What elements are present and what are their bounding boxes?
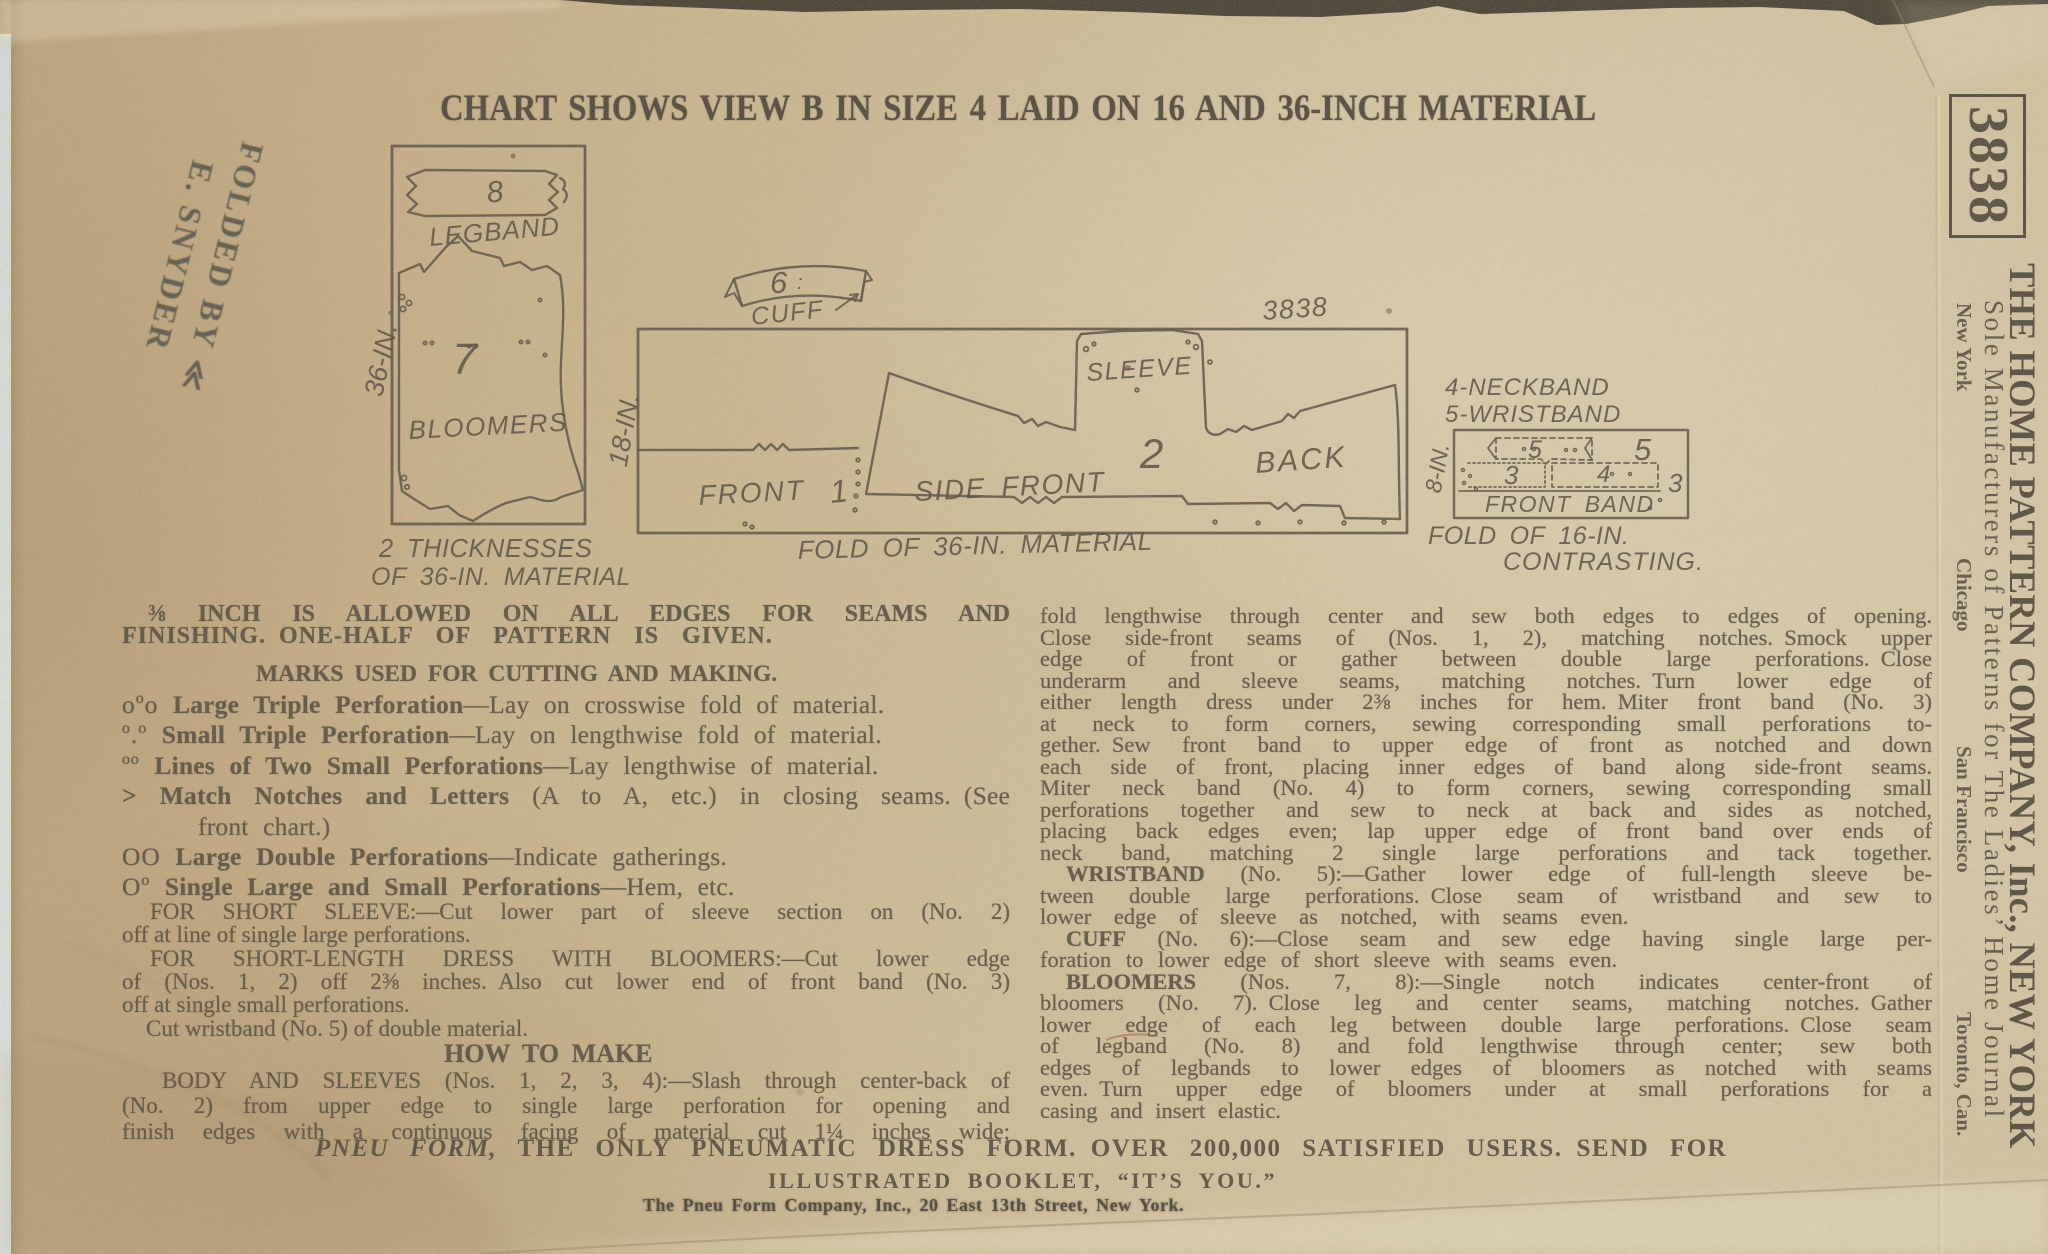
svg-text:BLOOMERS: BLOOMERS [408,407,569,445]
svg-text:36-IN.: 36-IN. [359,321,404,399]
svg-text:6: 6 [770,265,788,300]
svg-text:3: 3 [1668,468,1683,498]
svg-text:OF 36-IN. MATERIAL: OF 36-IN. MATERIAL [371,563,631,591]
svg-text:4-NECKBAND: 4-NECKBAND [1445,374,1610,401]
svg-text:FRONT: FRONT [698,474,806,511]
svg-text:7: 7 [452,335,478,384]
svg-text:5-WRISTBAND: 5-WRISTBAND [1445,401,1621,428]
svg-text:FOLD OF 16-IN.: FOLD OF 16-IN. [1428,522,1629,550]
svg-text:SLEEVE: SLEEVE [1085,352,1193,387]
svg-text:3838: 3838 [1261,291,1329,326]
svg-text:CONTRASTING.: CONTRASTING. [1503,548,1704,576]
svg-text:2: 2 [1139,430,1163,477]
svg-text:8-IN.: 8-IN. [1420,441,1454,495]
svg-text:2 THICKNESSES: 2 THICKNESSES [378,535,592,563]
svg-text:3: 3 [1504,460,1519,490]
svg-text:FRONT BAND: FRONT BAND [1485,491,1655,517]
svg-text:BACK: BACK [1254,441,1348,480]
svg-text:4: 4 [1597,461,1610,488]
svg-text:8: 8 [484,175,505,210]
svg-text::: : [797,272,803,294]
svg-text:5: 5 [1528,436,1542,464]
svg-text:5: 5 [1634,432,1652,467]
svg-text:1: 1 [828,472,849,510]
svg-text:SIDE FRONT: SIDE FRONT [914,466,1107,507]
